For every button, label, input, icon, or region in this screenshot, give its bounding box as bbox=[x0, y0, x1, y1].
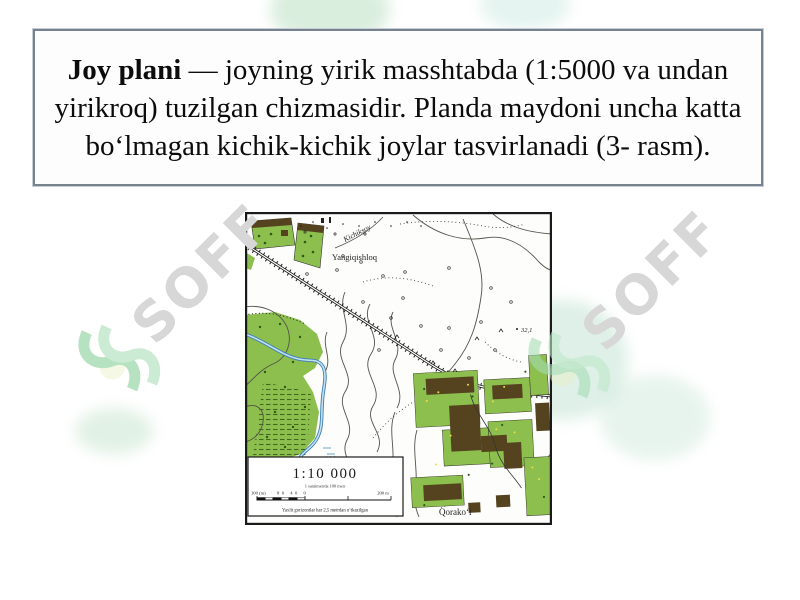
scale-box: 1:10 000 1 santimetrda 100 metr 100 (m) … bbox=[248, 457, 403, 516]
definition-term: Joy plani bbox=[68, 54, 182, 86]
elevation-label: 32,1 bbox=[520, 327, 532, 334]
scale-subtitle: 1 santimetrda 100 metr bbox=[305, 484, 346, 489]
topographic-map: Kichiksoy Yangiqishloq Qorako‘l 32,1 1:1… bbox=[245, 212, 552, 525]
scale-bar-right-label: 200 m bbox=[377, 491, 389, 496]
village-bottom-label: Qorako‘l bbox=[439, 507, 472, 517]
definition-box: Joy plani — joyning yirik masshtabda (1:… bbox=[33, 29, 763, 186]
scale-footnote: Yaxlit gorizontlar har 2,5 metrdan o‘tka… bbox=[282, 508, 369, 514]
background-tint-blob bbox=[75, 408, 153, 454]
scale-bar-left-label: 100 (m) bbox=[251, 491, 266, 496]
definition-text: Joy plani — joyning yirik masshtabda (1:… bbox=[35, 51, 761, 165]
scale-ratio: 1:10 000 bbox=[293, 466, 358, 482]
elevation-point bbox=[516, 328, 518, 330]
map-figure: Kichiksoy Yangiqishloq Qorako‘l 32,1 1:1… bbox=[245, 212, 552, 525]
soff-logo-icon bbox=[54, 304, 171, 421]
background-tint-blob bbox=[480, 0, 570, 30]
watermark-text: SOFF bbox=[573, 201, 732, 360]
village-top-label: Yangiqishloq bbox=[332, 252, 378, 262]
scale-bar-mid-label: 80 40 0 bbox=[277, 491, 308, 496]
background-tint-blob bbox=[600, 375, 710, 460]
slide: SOFF SOFF Joy plani — joyning yirik mass… bbox=[0, 0, 800, 600]
